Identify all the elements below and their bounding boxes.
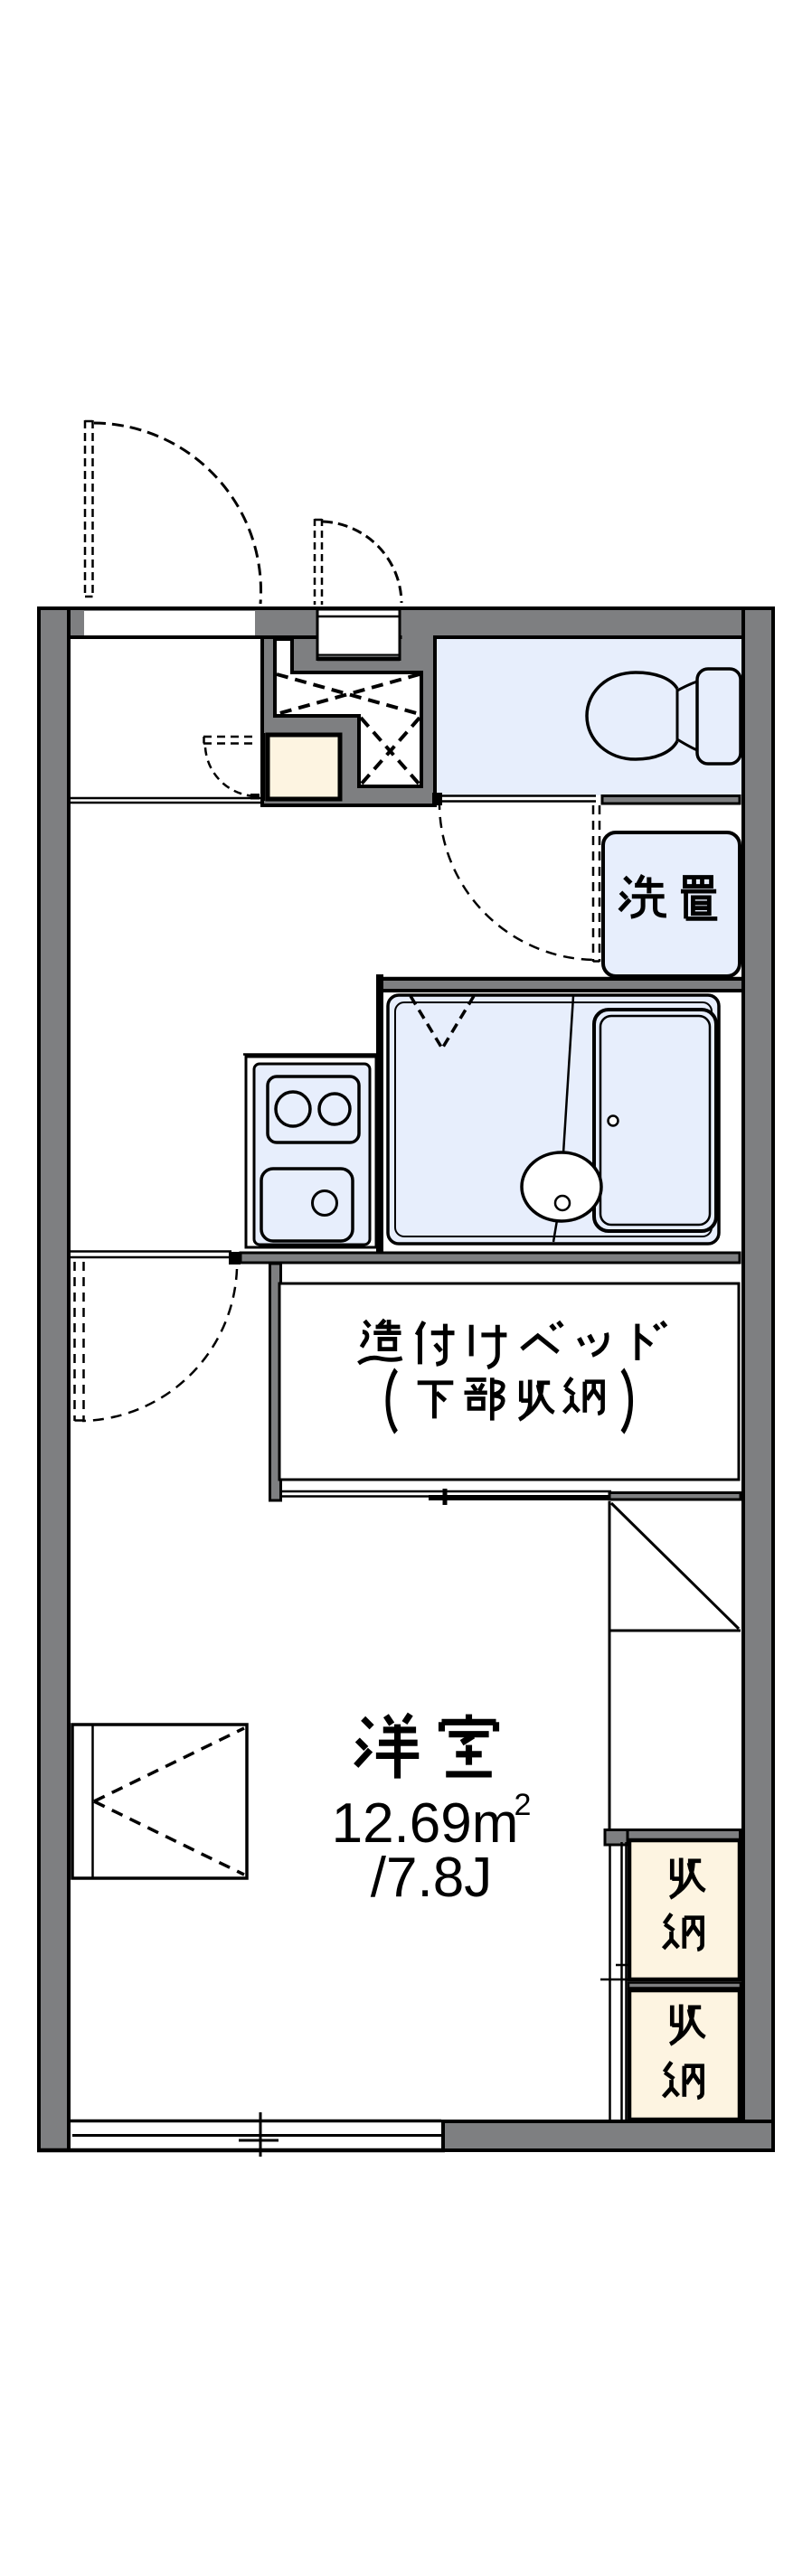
svg-text:/7.8J: /7.8J (371, 1847, 492, 1909)
svg-text:12.69m: 12.69m (332, 1792, 519, 1855)
svg-text:2: 2 (515, 1788, 532, 1822)
